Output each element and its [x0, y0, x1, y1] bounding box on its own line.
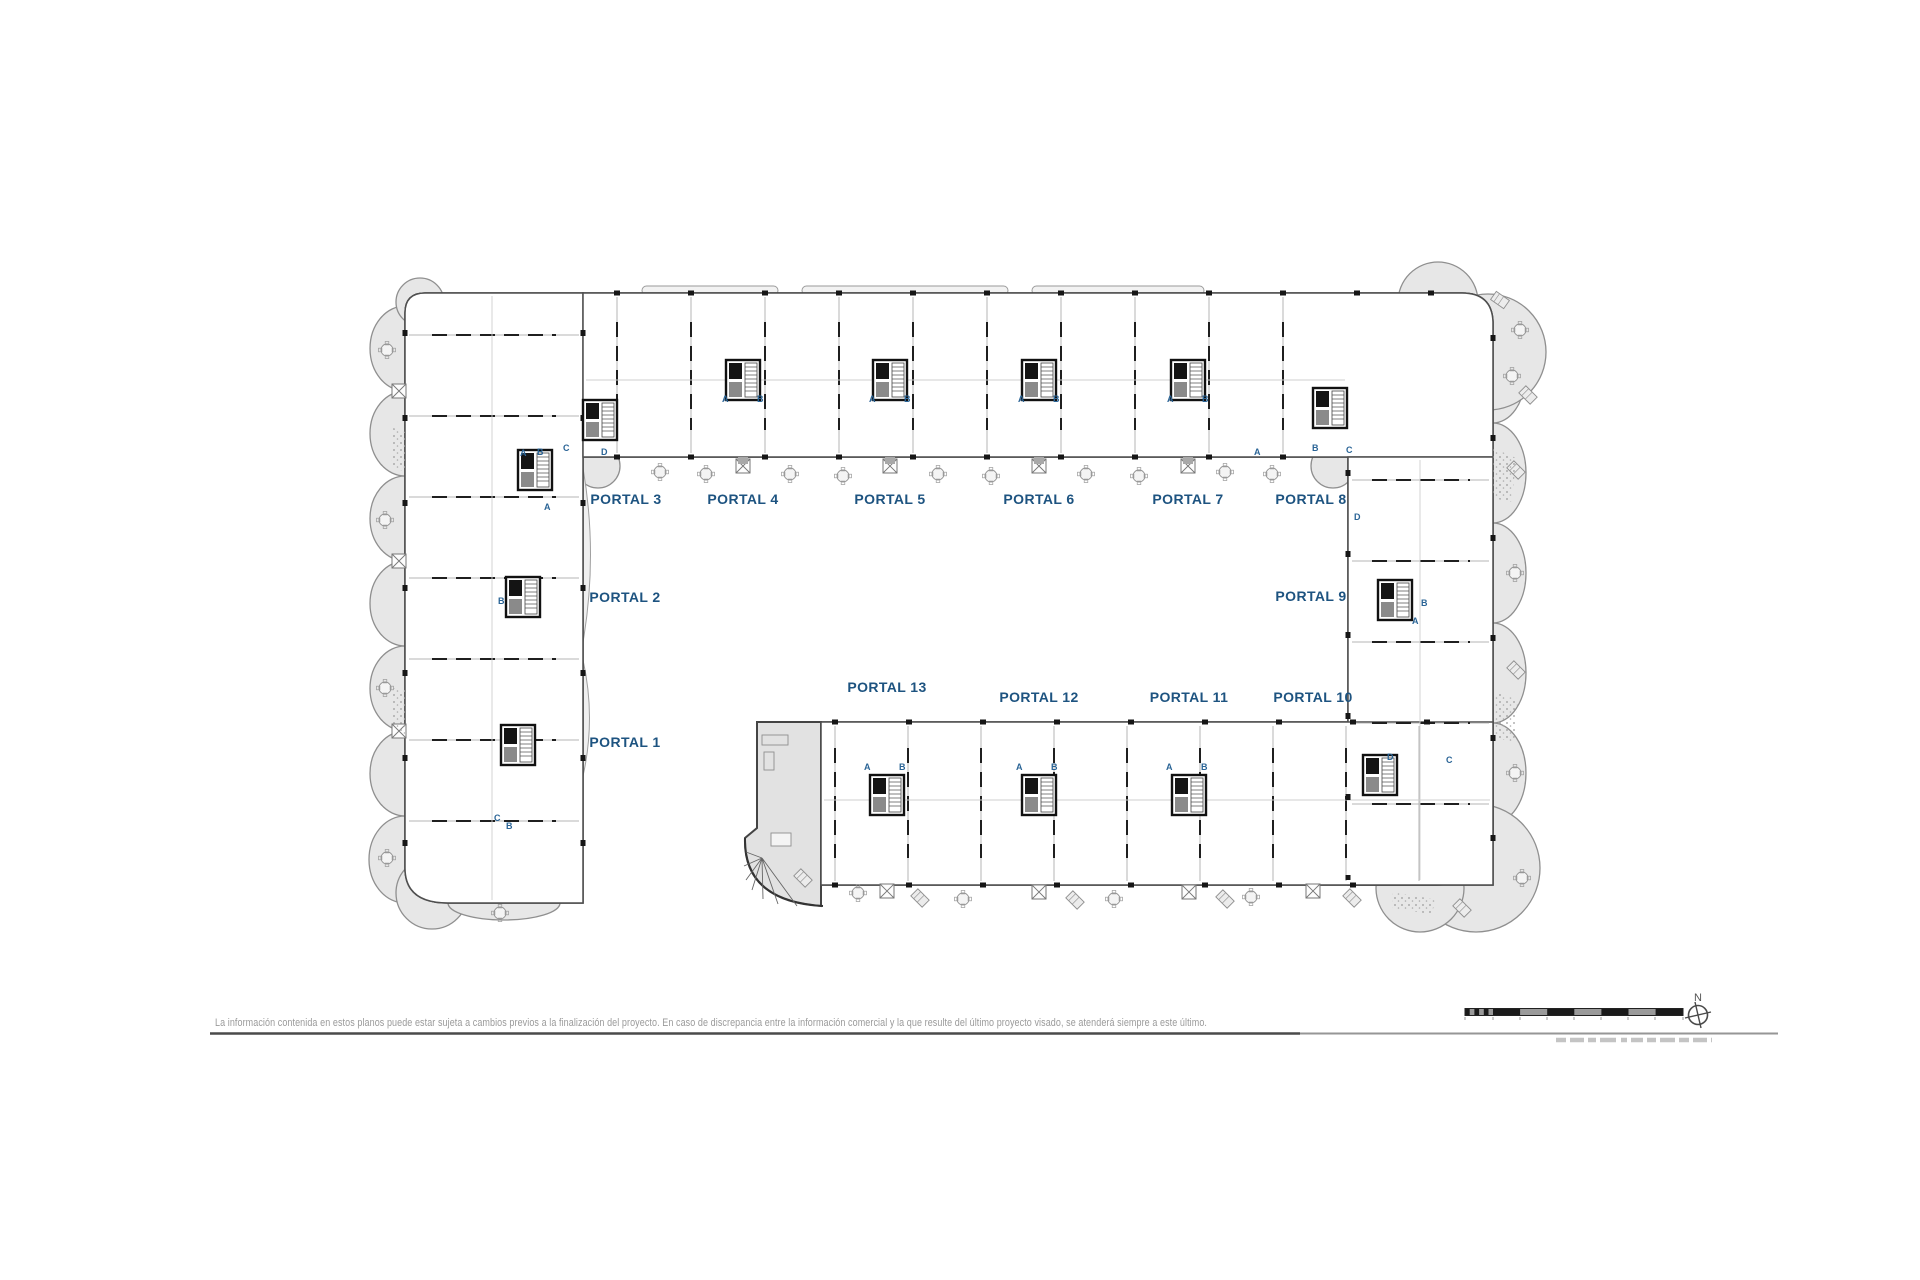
portal-4-label: PORTAL 4	[707, 491, 778, 507]
svg-text:B: B	[506, 821, 513, 831]
svg-text:B: B	[1201, 762, 1208, 772]
footer: La información contenida en estos planos…	[210, 992, 1778, 1040]
portal-3-label: PORTAL 3	[590, 491, 661, 507]
portal-12-label: PORTAL 12	[999, 689, 1078, 705]
portal-6-label: PORTAL 6	[1003, 491, 1074, 507]
floor-plan: PORTAL 1 PORTAL 2 PORTAL 3 PORTAL 4 PORT…	[0, 0, 1920, 1280]
svg-text:B: B	[1421, 598, 1428, 608]
courtyard-edge-arc	[583, 468, 591, 642]
svg-text:B: B	[899, 762, 906, 772]
portal-2-label: PORTAL 2	[589, 589, 660, 605]
portal-7-label: PORTAL 7	[1152, 491, 1223, 507]
svg-text:A: A	[1016, 762, 1023, 772]
svg-text:A: A	[1166, 762, 1173, 772]
svg-text:B: B	[498, 596, 505, 606]
svg-text:A: A	[864, 762, 871, 772]
svg-text:A: A	[869, 394, 876, 404]
svg-text:B: B	[537, 447, 544, 457]
svg-text:A: A	[1018, 394, 1025, 404]
disclaimer-text: La información contenida en estos planos…	[215, 1017, 1207, 1029]
svg-text:C: C	[563, 443, 570, 453]
portal-1-label: PORTAL 1	[589, 734, 660, 750]
svg-text:A: A	[1167, 394, 1174, 404]
svg-text:C: C	[1346, 445, 1353, 455]
svg-text:B: B	[757, 394, 764, 404]
svg-text:A: A	[544, 502, 551, 512]
svg-text:A: A	[722, 394, 729, 404]
portal-5-label: PORTAL 5	[854, 491, 925, 507]
portal-11-label: PORTAL 11	[1150, 689, 1229, 705]
svg-text:A: A	[1412, 616, 1419, 626]
svg-text:D: D	[601, 447, 608, 457]
svg-text:C: C	[1446, 755, 1453, 765]
svg-text:C: C	[494, 813, 501, 823]
svg-text:B: B	[1312, 443, 1319, 453]
svg-text:B: B	[1051, 762, 1058, 772]
north-compass-icon: N	[1685, 992, 1711, 1028]
svg-text:D: D	[1354, 512, 1361, 522]
svg-text:B: B	[904, 394, 911, 404]
portal-labels: PORTAL 1 PORTAL 2 PORTAL 3 PORTAL 4 PORT…	[589, 491, 1352, 750]
portal-8-label: PORTAL 8	[1275, 491, 1346, 507]
scale-bar	[1465, 1009, 1683, 1021]
svg-text:A: A	[520, 448, 527, 458]
portal-10-label: PORTAL 10	[1273, 689, 1352, 705]
svg-text:B: B	[1202, 394, 1209, 404]
svg-text:A: A	[1254, 447, 1261, 457]
portal-9-label: PORTAL 9	[1275, 588, 1346, 604]
svg-text:D: D	[1387, 752, 1394, 762]
portal-13-label: PORTAL 13	[847, 679, 926, 695]
svg-text:B: B	[1053, 394, 1060, 404]
